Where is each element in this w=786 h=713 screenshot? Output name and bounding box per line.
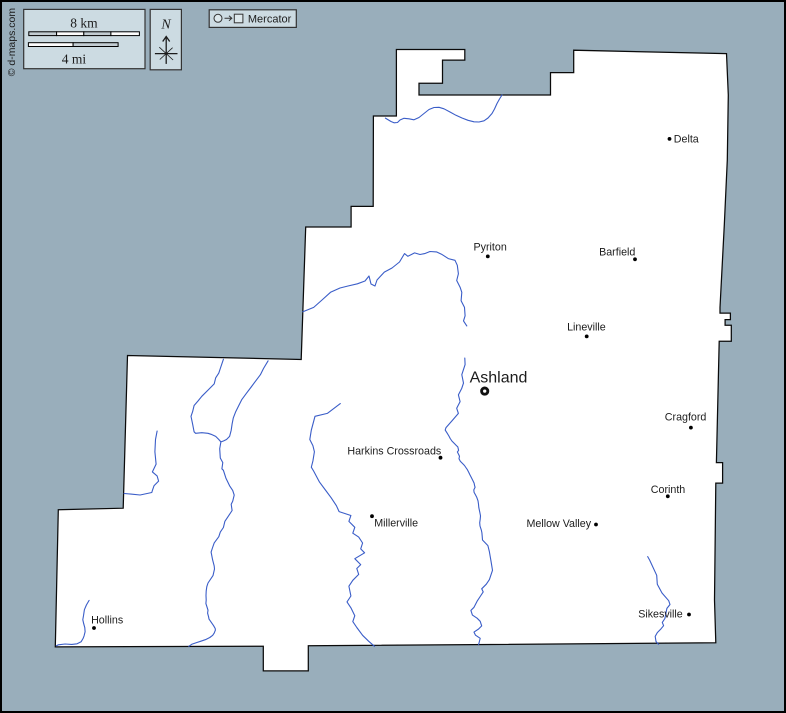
svg-text:Delta: Delta [674, 134, 699, 146]
svg-text:Ashland: Ashland [470, 369, 528, 386]
svg-text:Lineville: Lineville [567, 322, 606, 334]
svg-text:Corinth: Corinth [651, 484, 686, 496]
svg-text:8 km: 8 km [70, 16, 98, 31]
svg-text:Harkins Crossroads: Harkins Crossroads [347, 446, 441, 458]
svg-text:Millerville: Millerville [374, 518, 418, 530]
svg-text:Hollins: Hollins [91, 615, 123, 627]
svg-text:© d-maps.com: © d-maps.com [6, 8, 18, 77]
svg-text:Cragford: Cragford [665, 412, 707, 424]
svg-text:N: N [160, 18, 171, 33]
svg-text:Mercator: Mercator [248, 13, 292, 25]
svg-text:Mellow Valley: Mellow Valley [527, 518, 592, 530]
svg-text:Pyriton: Pyriton [474, 241, 507, 253]
svg-text:Barfield: Barfield [599, 246, 635, 258]
svg-text:Sikesville: Sikesville [638, 609, 683, 621]
svg-text:4 mi: 4 mi [62, 52, 87, 67]
